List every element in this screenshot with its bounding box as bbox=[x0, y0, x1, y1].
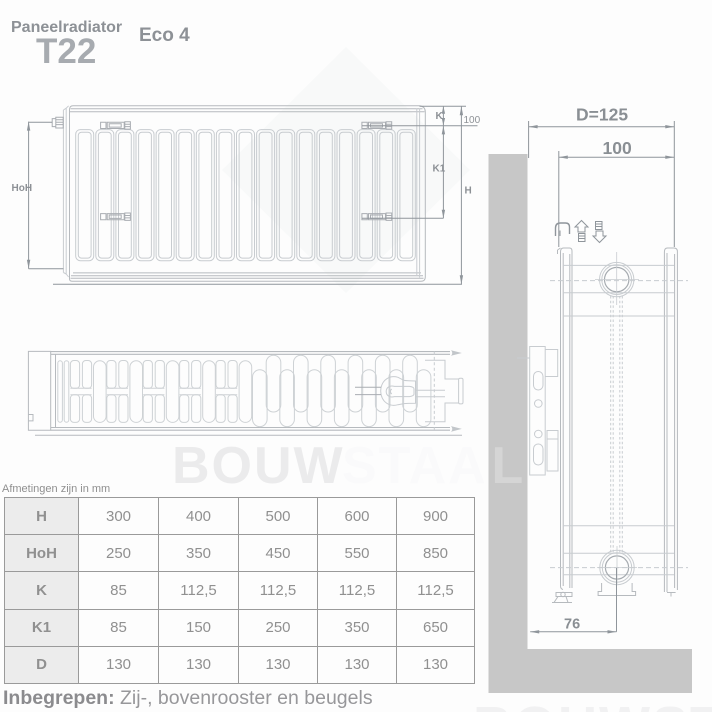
svg-text:STAA: STAA bbox=[342, 437, 488, 495]
svg-text:K1: K1 bbox=[433, 164, 446, 175]
svg-text:D=125: D=125 bbox=[576, 105, 628, 125]
svg-text:76: 76 bbox=[564, 617, 580, 633]
svg-text:L: L bbox=[492, 437, 524, 495]
svg-text:100: 100 bbox=[464, 115, 481, 126]
svg-text:100: 100 bbox=[603, 138, 632, 158]
svg-text:H: H bbox=[465, 186, 472, 197]
svg-text:HoH: HoH bbox=[12, 183, 33, 194]
svg-text:K: K bbox=[436, 111, 444, 122]
svg-text:BOUW: BOUW bbox=[172, 437, 345, 495]
svg-text:BOUWSTAAL: BOUWSTAAL bbox=[473, 696, 712, 712]
